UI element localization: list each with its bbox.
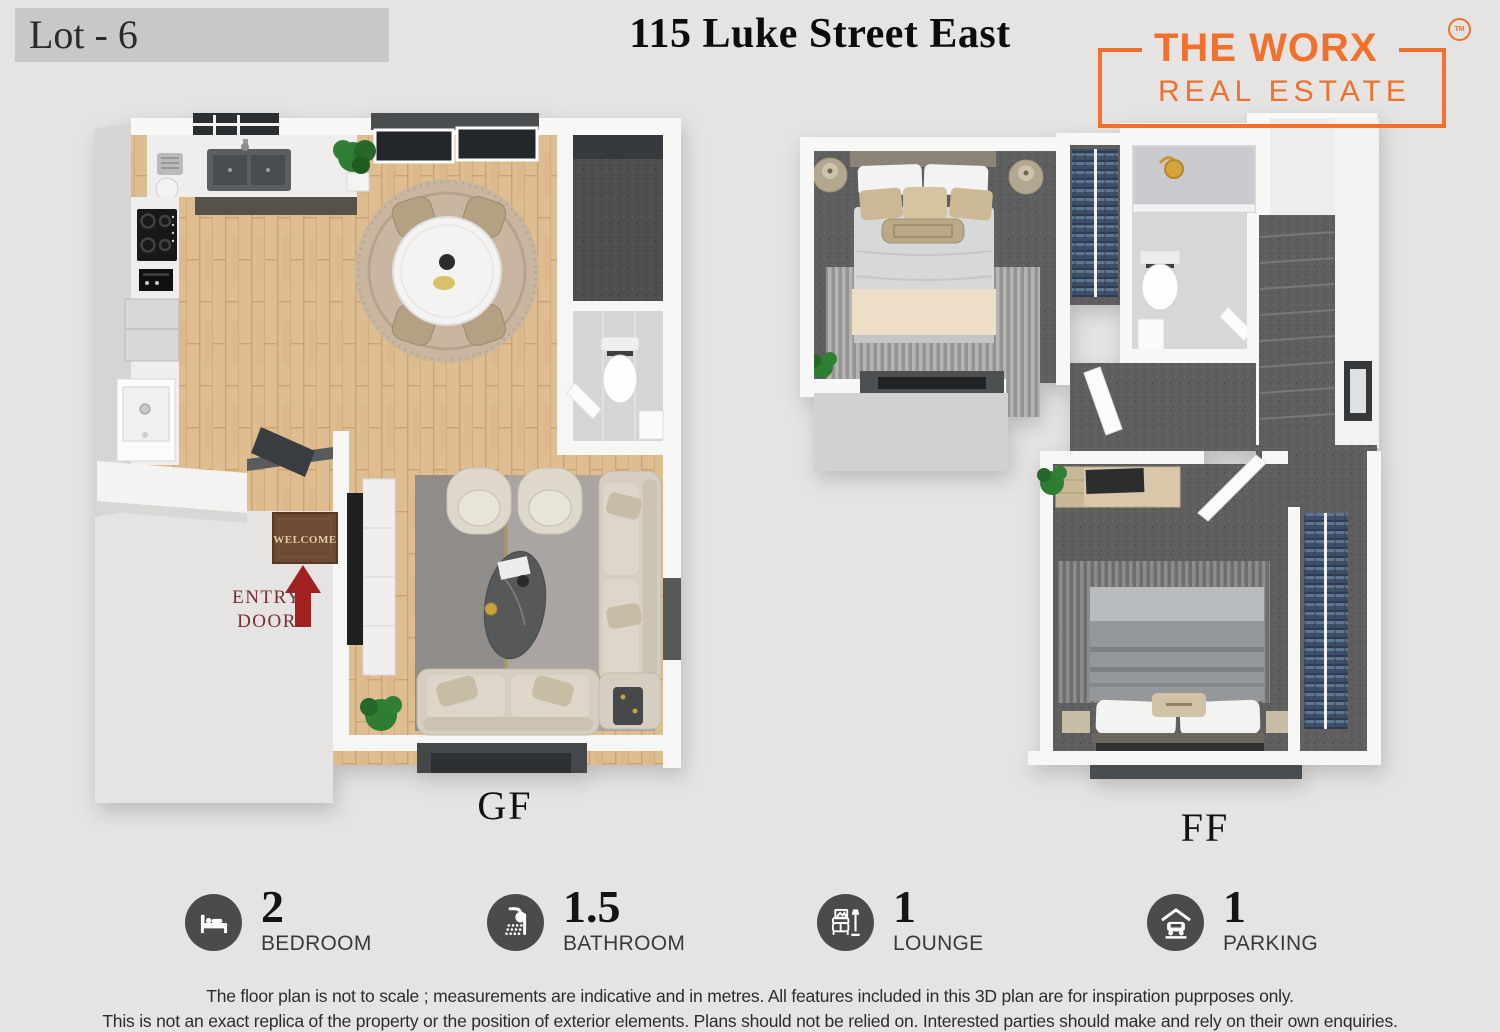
feature-lounge-text: 1 LOUNGE — [893, 884, 984, 956]
parking-icon — [1147, 894, 1204, 951]
gf-toaster — [157, 153, 183, 175]
ff-plan-label: FF — [1150, 804, 1260, 851]
ff-shower — [1134, 147, 1254, 211]
gf-fridge — [125, 299, 179, 361]
entry-label-line1: ENTRY — [232, 587, 302, 608]
ff-floor-plan — [800, 111, 1385, 783]
disclaimer-line2: This is not an exact replica of the prop… — [0, 1011, 1500, 1032]
ff-stair-void — [814, 393, 1008, 471]
feature-parking: 1 PARKING — [1147, 894, 1318, 956]
gf-oven — [139, 269, 173, 291]
logo-frame-dash-right — [1399, 48, 1442, 52]
lounge-label: LOUNGE — [893, 932, 984, 956]
parking-count: 1 — [1223, 884, 1318, 930]
feature-bedroom: 2 BEDROOM — [185, 894, 372, 956]
ff-vanity — [1138, 319, 1164, 351]
gf-tv-screen — [347, 493, 363, 645]
bed-icon — [185, 894, 242, 951]
gf-dining-set — [355, 179, 539, 363]
ff-toilet — [1140, 251, 1180, 310]
feature-bathroom-text: 1.5 BATHROOM — [563, 884, 685, 956]
gf-powder-room — [567, 311, 663, 441]
parking-label: PARKING — [1223, 932, 1318, 956]
gf-laundry-tub — [117, 379, 175, 461]
feature-bedroom-text: 2 BEDROOM — [261, 884, 372, 956]
feature-bathroom: 1.5 BATHROOM — [487, 894, 685, 956]
gf-toilet — [601, 337, 639, 403]
logo-subtitle: REAL ESTATE — [1158, 75, 1411, 109]
lot-number-box: Lot - 6 — [15, 8, 389, 62]
disclaimer-line1: The floor plan is not to scale ; measure… — [0, 986, 1500, 1007]
gf-kitchen-window — [193, 113, 279, 137]
ff-stairs — [1259, 215, 1335, 445]
lounge-icon — [817, 894, 874, 951]
ff-wardrobe2 — [1288, 507, 1348, 753]
gf-side-table — [613, 687, 643, 725]
ff-bedside-left — [1062, 711, 1090, 733]
entry-label-line2: DOOR — [237, 611, 297, 632]
gf-right-window — [663, 578, 681, 660]
welcome-mat-text: WELCOME — [273, 534, 336, 546]
gf-kettle — [156, 178, 178, 200]
logo-name: THE WORX — [1154, 26, 1378, 71]
ff-bedroom2 — [1028, 451, 1381, 779]
gf-stairs — [573, 135, 663, 301]
bedroom-label: BEDROOM — [261, 932, 372, 956]
agency-logo: THE WORX REAL ESTATE TM — [1096, 18, 1486, 134]
feature-lounge: 1 LOUNGE — [817, 894, 984, 956]
feature-parking-text: 1 PARKING — [1223, 884, 1318, 956]
page-title: 115 Luke Street East — [540, 10, 1100, 58]
trademark-icon: TM — [1448, 18, 1471, 41]
bathroom-count: 1.5 — [563, 884, 685, 930]
ff-wall-frame — [1344, 361, 1372, 421]
gf-plan-label: GF — [450, 782, 560, 829]
lounge-count: 1 — [893, 884, 984, 930]
gf-gold-lamp — [485, 603, 497, 615]
bathroom-label: BATHROOM — [563, 932, 685, 956]
gf-wc-vanity — [639, 411, 663, 439]
gf-cooktop — [137, 209, 177, 261]
gf-welcome-mat: WELCOME — [273, 513, 337, 563]
gf-floor-plan: WELCOME ENTRY DOOR — [95, 113, 685, 803]
ff-balcony-band — [1090, 765, 1302, 779]
ff-dresser — [1056, 467, 1180, 507]
shower-icon — [487, 894, 544, 951]
ff-closet — [1056, 133, 1134, 385]
lot-number-label: Lot - 6 — [15, 8, 389, 58]
logo-frame-dash-left — [1098, 48, 1142, 52]
flyer-page: { "header": { "lot_label": "Lot - 6", "t… — [0, 0, 1500, 1028]
gf-dining-table — [393, 217, 501, 325]
gf-deck — [417, 743, 587, 773]
ff-bedroom1 — [800, 137, 1056, 471]
bedroom-count: 2 — [261, 884, 372, 930]
